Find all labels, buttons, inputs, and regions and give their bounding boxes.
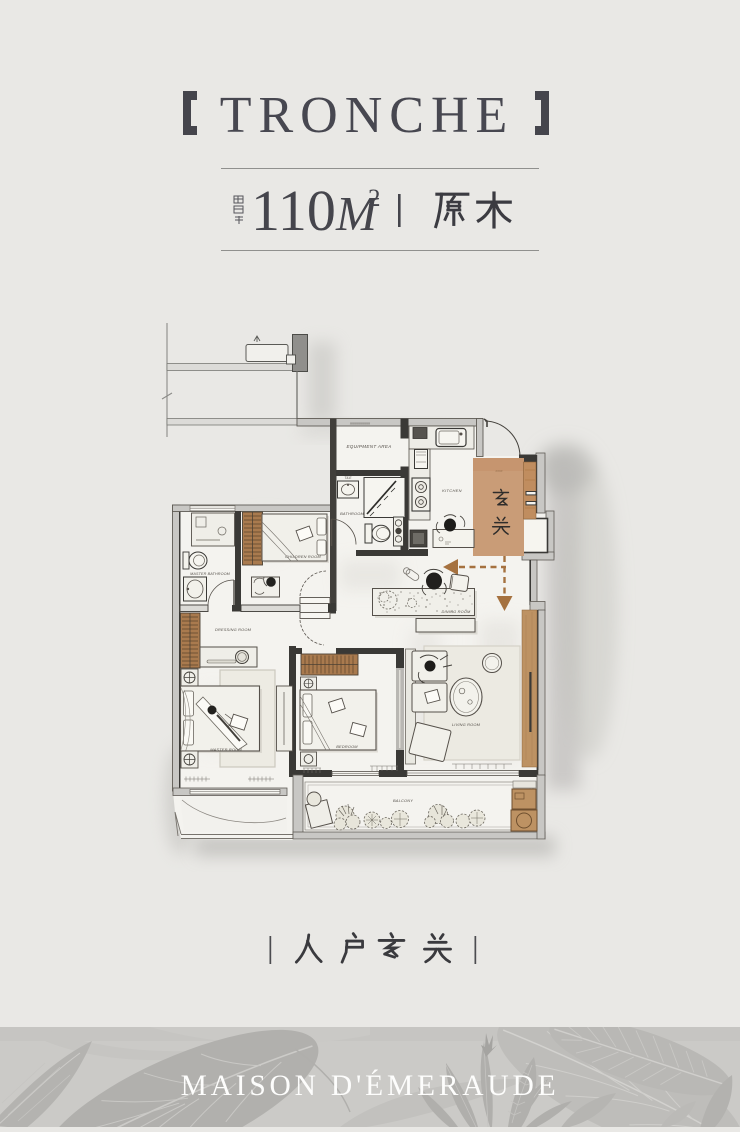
svg-text:DINING ROOM: DINING ROOM	[441, 609, 471, 614]
svg-text:MASTER ROOM: MASTER ROOM	[210, 747, 242, 752]
svg-text:LIVING ROOM: LIVING ROOM	[452, 722, 481, 727]
svg-text:MASTER BATHROOM: MASTER BATHROOM	[190, 572, 230, 576]
svg-text:xxxx: xxxx	[494, 469, 502, 473]
svg-text:KITCHEN: KITCHEN	[442, 488, 462, 493]
svg-text:MAISON D'ÉMERAUDE: MAISON D'ÉMERAUDE	[181, 1069, 560, 1102]
svg-text:DRESSING ROOM: DRESSING ROOM	[215, 627, 252, 632]
svg-text:EQUIPMENT AREA: EQUIPMENT AREA	[346, 444, 391, 449]
svg-text:xxxxxxxxxx: xxxxxxxxxx	[349, 421, 371, 426]
svg-text:CHILDREN ROOM: CHILDREN ROOM	[285, 554, 321, 559]
svg-text:BALCONY: BALCONY	[393, 798, 413, 803]
svg-text:BEDROOM: BEDROOM	[336, 744, 358, 749]
svg-text:BATHROOM: BATHROOM	[340, 511, 364, 516]
svg-text:TILE: TILE	[344, 476, 352, 480]
